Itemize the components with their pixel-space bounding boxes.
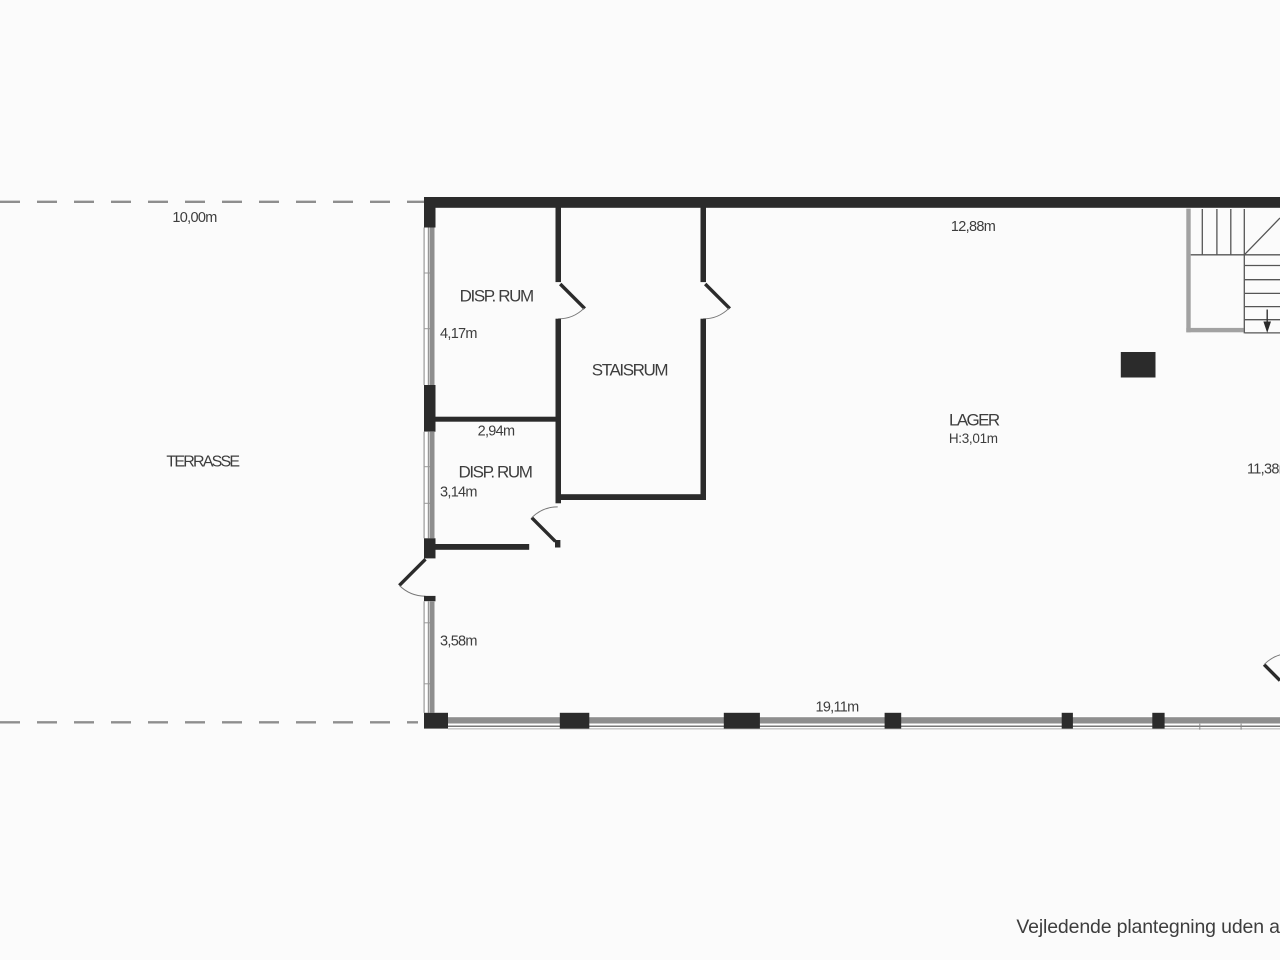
svg-text:3,14m: 3,14m: [440, 485, 477, 501]
svg-text:4,17m: 4,17m: [440, 326, 477, 342]
svg-text:3,58m: 3,58m: [440, 634, 477, 650]
svg-text:11,38m: 11,38m: [1247, 462, 1280, 478]
svg-text:TERRASSE: TERRASSE: [166, 454, 239, 471]
svg-text:12,88m: 12,88m: [951, 219, 996, 235]
svg-text:Vejledende plantegning uden an: Vejledende plantegning uden ansvar: [1016, 916, 1280, 938]
svg-text:STAISRUM: STAISRUM: [592, 361, 668, 380]
svg-text:DISP. RUM: DISP. RUM: [458, 463, 531, 482]
svg-text:10,00m: 10,00m: [172, 210, 217, 226]
svg-text:DISP. RUM: DISP. RUM: [460, 287, 533, 306]
svg-text:H:3,01m: H:3,01m: [949, 431, 998, 446]
svg-text:19,11m: 19,11m: [815, 700, 859, 716]
svg-text:LAGER: LAGER: [949, 411, 1000, 430]
svg-text:2,94m: 2,94m: [478, 424, 515, 440]
